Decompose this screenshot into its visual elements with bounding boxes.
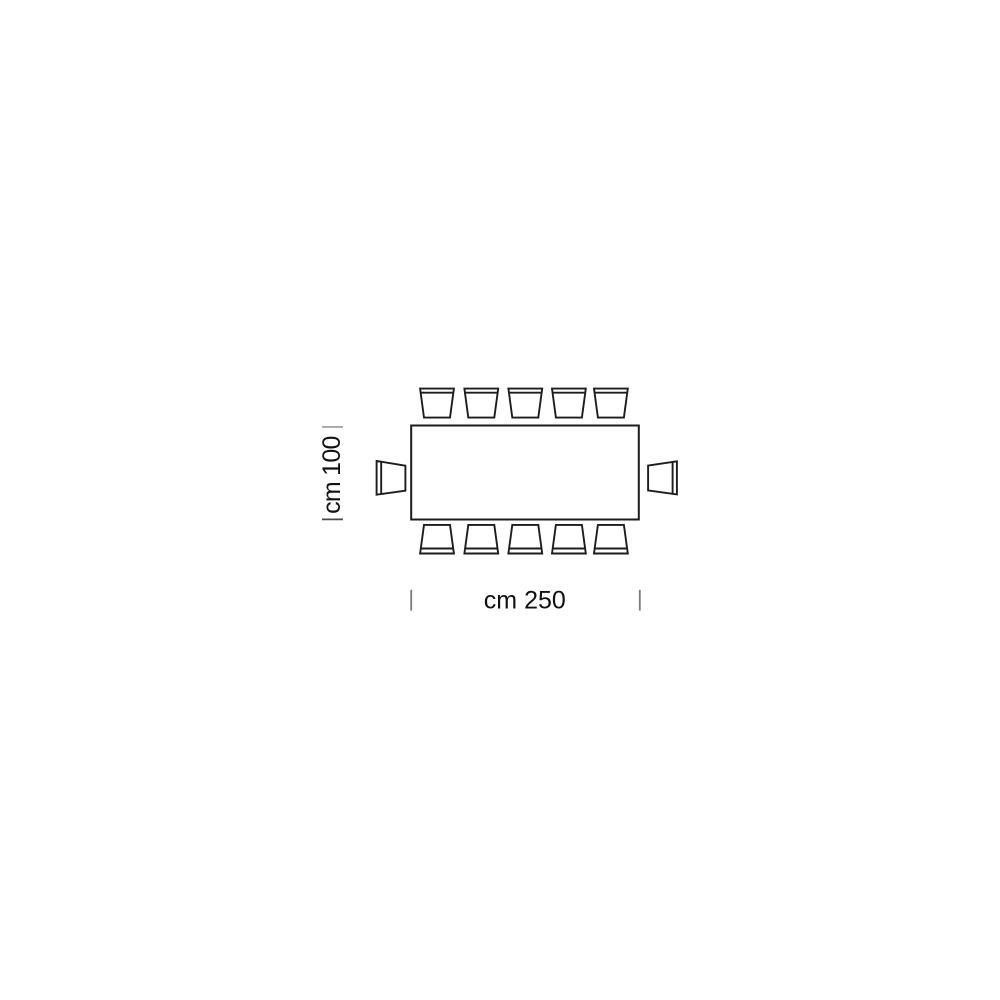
svg-text:cm 100: cm 100 (318, 436, 346, 513)
svg-text:cm 250: cm 250 (484, 587, 566, 615)
